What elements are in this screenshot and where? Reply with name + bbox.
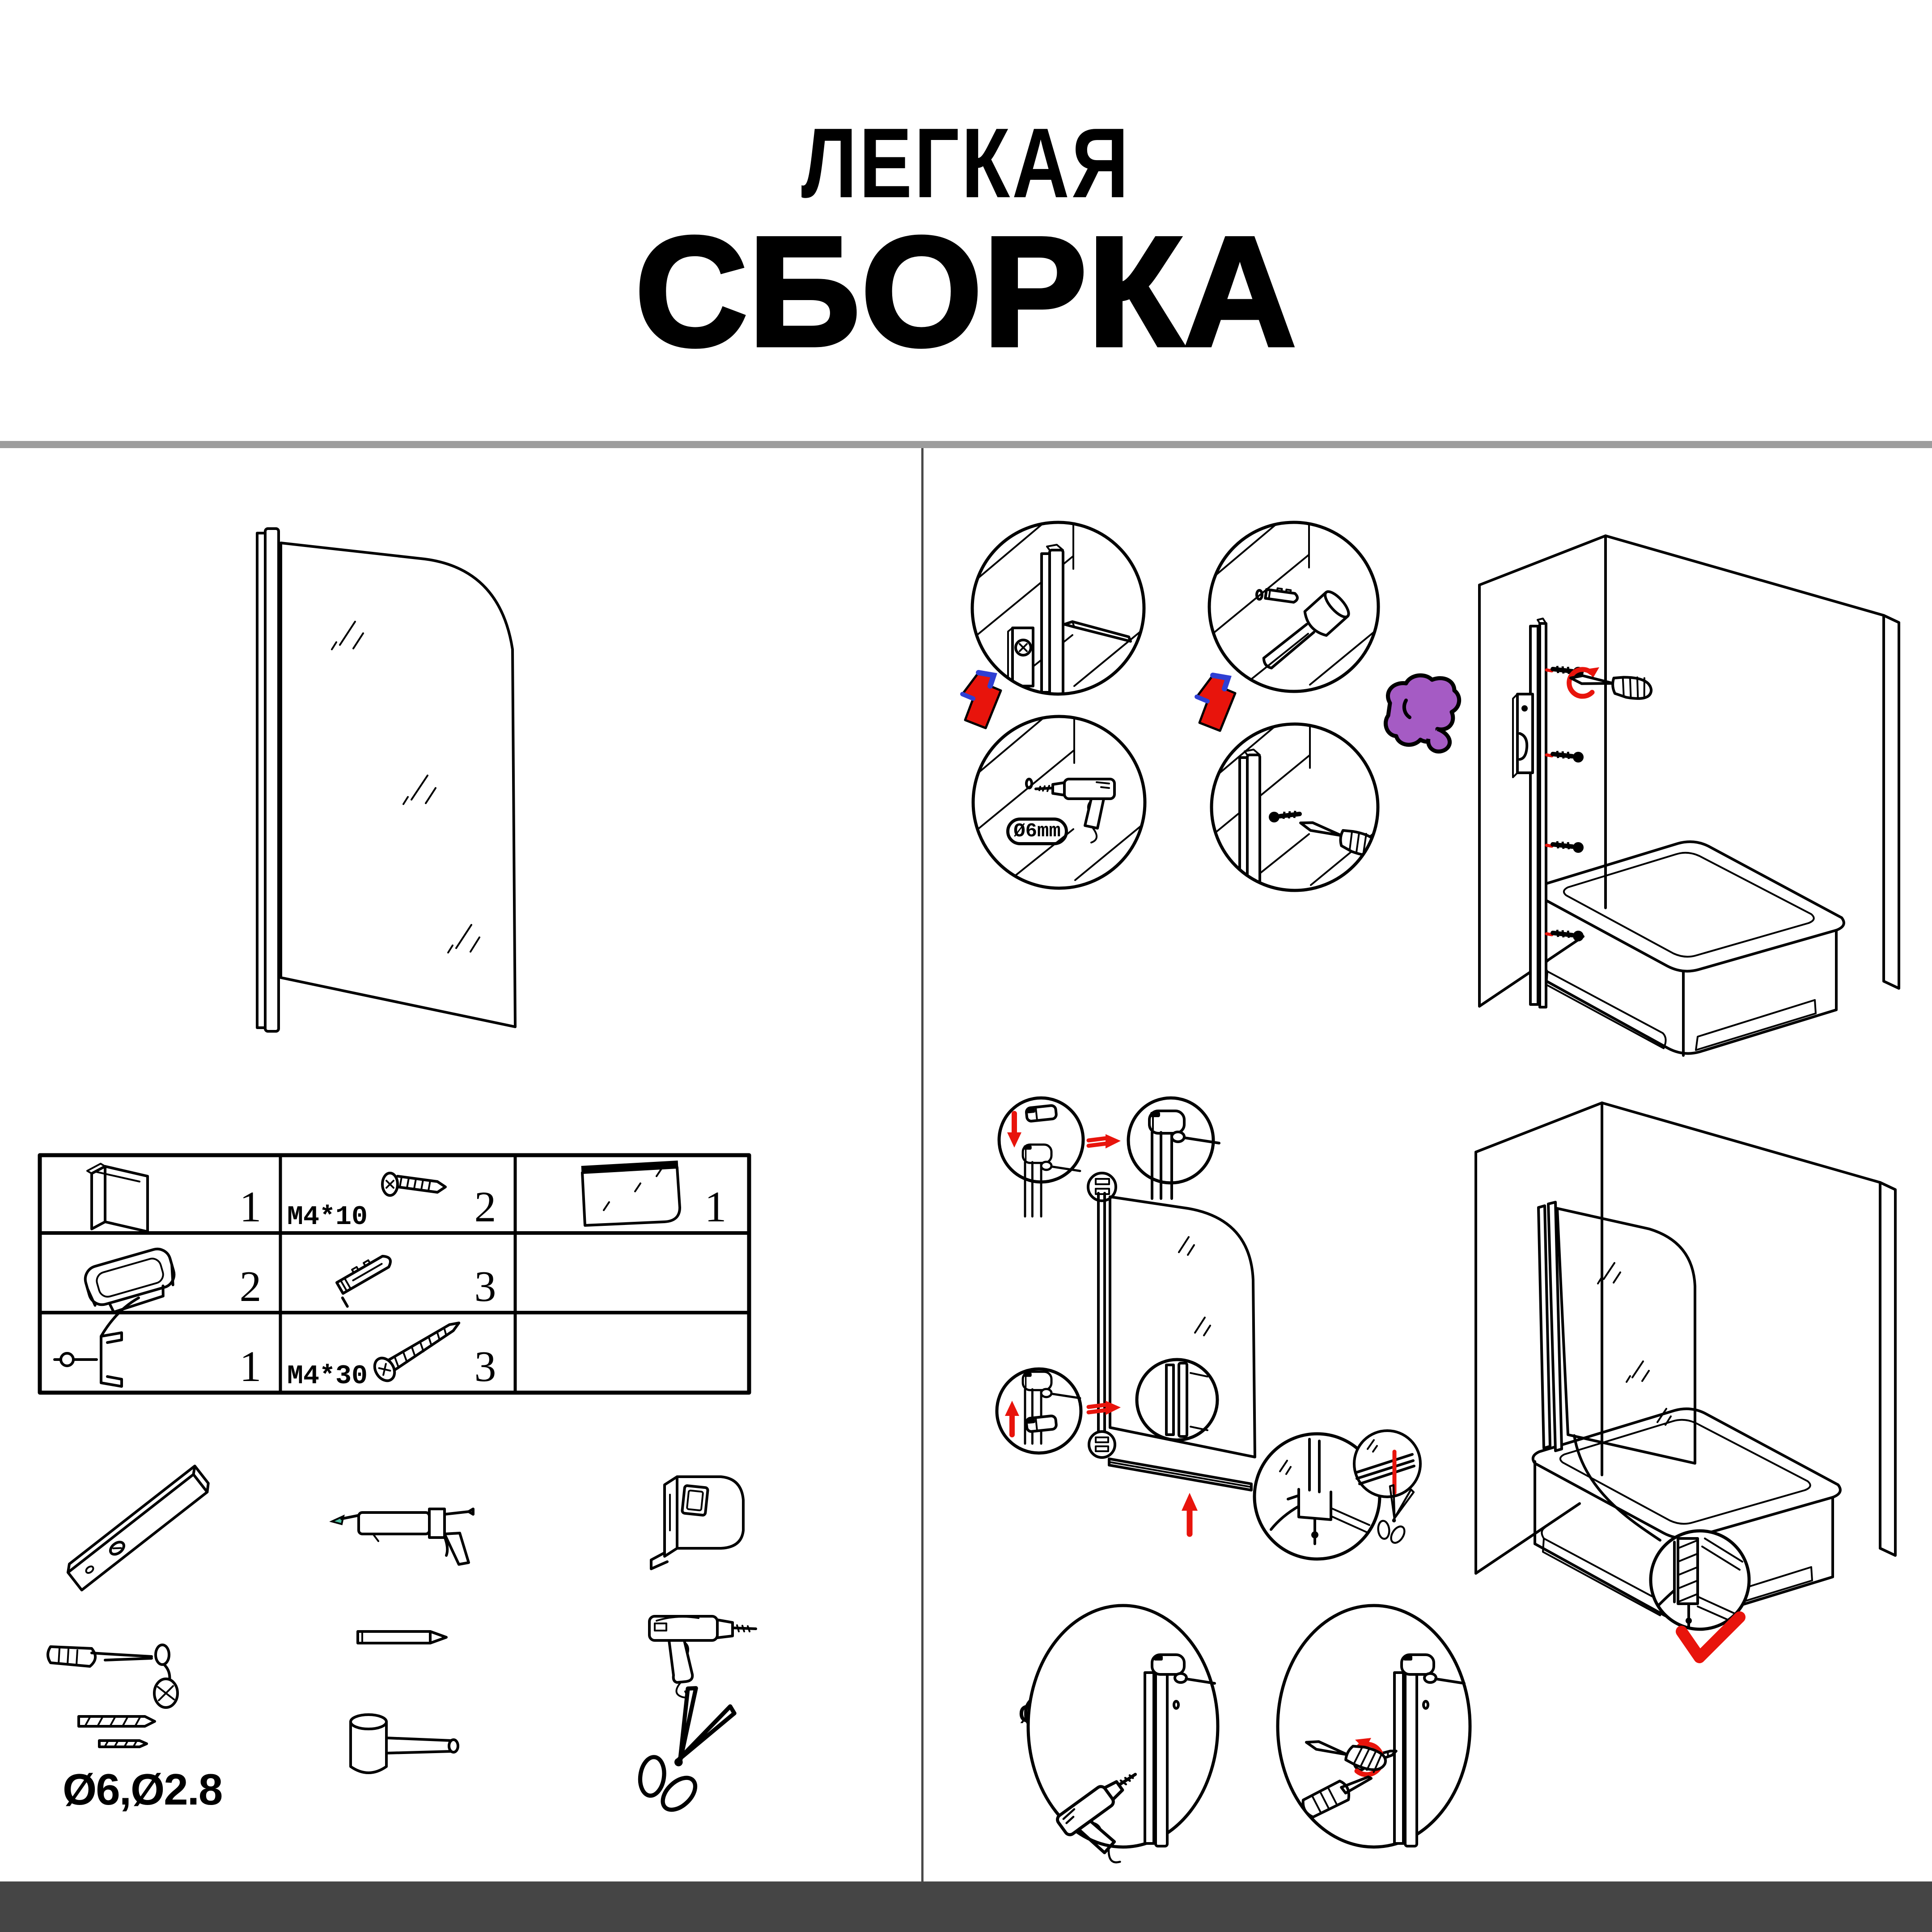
step1-mark-circle: [970, 521, 1145, 694]
fixing-screws: [1546, 666, 1584, 941]
part-wall-anchor-icon: [333, 1250, 400, 1306]
glass-panel-drawing: [257, 529, 515, 1031]
step1-screw-circle: [1207, 720, 1381, 894]
tape-measure-icon: [651, 1477, 743, 1569]
pilot-drill-ellipse: [1028, 1606, 1218, 1877]
step2-cap-top-circle: [999, 1098, 1083, 1216]
part-screw-short-icon: [382, 1173, 445, 1195]
step1-drill-circle: [971, 715, 1146, 888]
assembly-instruction-sheet: ЛЕГКАЯ СБОРКА 1 2 1 2 3 1 3 M4*10 M4*30 …: [0, 0, 1932, 1932]
step1-anchor-circle: [1206, 520, 1381, 691]
part-glass-panel-icon: [581, 1164, 680, 1225]
scene-fix-profile: [1479, 536, 1899, 1055]
glass-reflection-marks: [332, 622, 479, 953]
step2-arrow-top: [1089, 1134, 1121, 1148]
seal-up-arrow: [1182, 1493, 1198, 1534]
peel-arrow-1: [962, 673, 1001, 728]
step2-cap-done-circle: [1128, 1098, 1219, 1199]
spirit-level-icon: [64, 1466, 212, 1590]
part-screw-long-icon: [371, 1313, 466, 1384]
scissors-icon: [625, 1681, 741, 1822]
scene-install-screen: [1476, 1103, 1895, 1657]
screwdriver-icon: [48, 1645, 178, 1707]
peel-arrow-2: [1197, 675, 1235, 731]
wall-latch-plate: [1513, 694, 1533, 777]
part-wall-profile-icon: [87, 1164, 148, 1232]
caulking-gun-icon: [332, 1509, 473, 1564]
line-art: [0, 0, 1932, 1932]
screw-in-ellipse: [1278, 1606, 1470, 1847]
mallet-icon: [351, 1715, 458, 1773]
pointing-hand-icon: [1385, 675, 1459, 751]
bottom-seal-strip: [1109, 1459, 1251, 1490]
electric-drill-icon: [649, 1616, 756, 1698]
pencil-icon: [358, 1631, 446, 1643]
drill-bits-icon: [79, 1716, 155, 1747]
step2-profile-section-circle: [1137, 1360, 1217, 1440]
screen-on-tub: [1538, 1202, 1695, 1463]
part-hinge-cap-icon: [82, 1246, 180, 1318]
step2-cap-bottom-circle: [997, 1369, 1081, 1453]
